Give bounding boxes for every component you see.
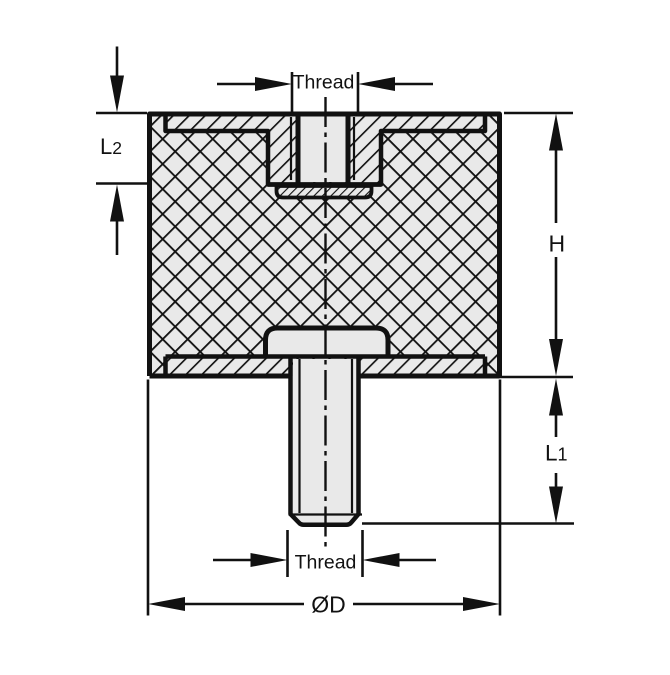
svg-text:L2: L2 — [100, 134, 122, 159]
svg-text:L1: L1 — [545, 441, 568, 466]
svg-text:H: H — [549, 231, 566, 257]
svg-text:ØD: ØD — [311, 592, 346, 618]
svg-text:Thread: Thread — [293, 72, 355, 94]
svg-text:Thread: Thread — [295, 552, 357, 574]
